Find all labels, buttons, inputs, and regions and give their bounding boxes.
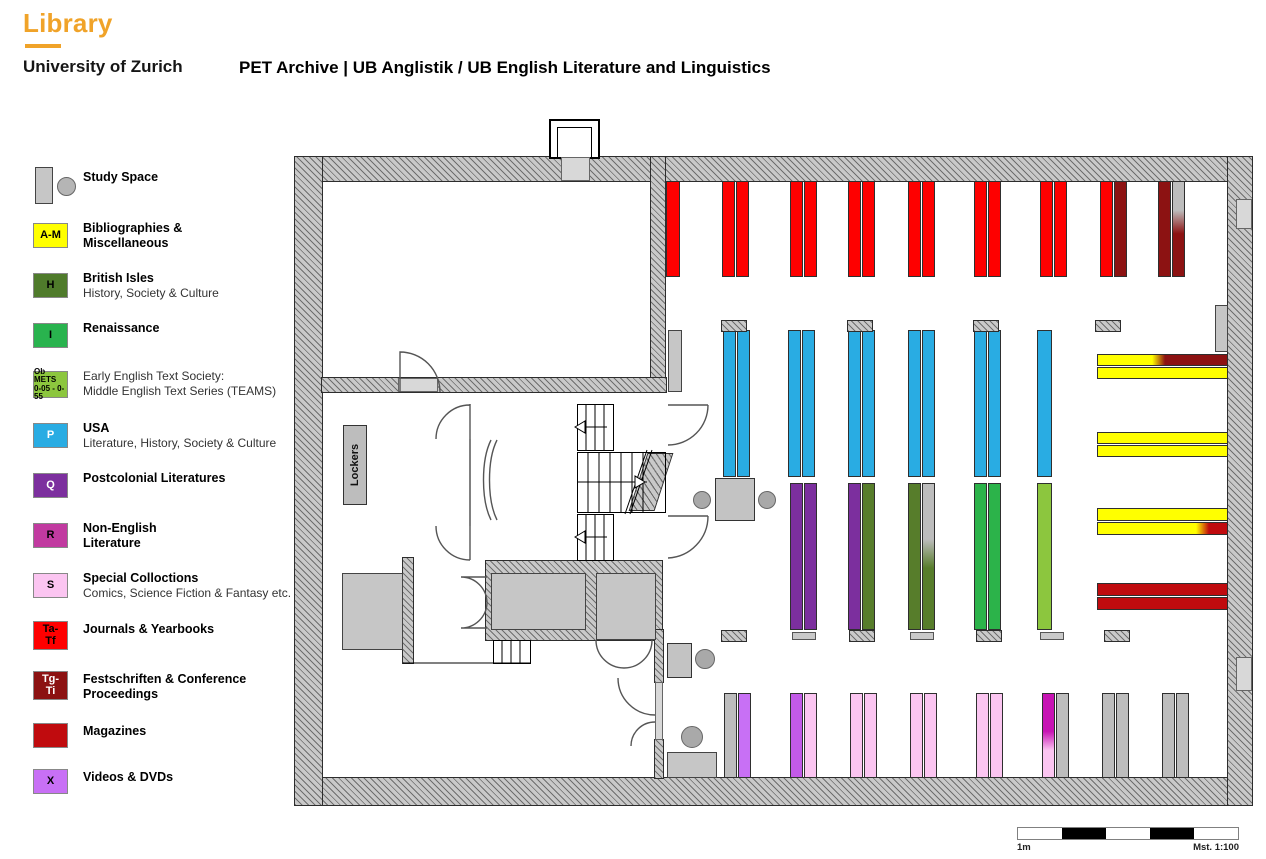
legend-text: Study Space — [83, 170, 303, 185]
shelf-bar — [1162, 693, 1175, 778]
shelf-bar — [974, 330, 987, 477]
door-threshold-room — [398, 378, 438, 392]
legend-swatch: Ta-Tf — [33, 621, 68, 650]
shelf-bar — [724, 693, 737, 778]
scale-bar — [1017, 827, 1239, 840]
legend-item: Tg-TiFestschriften & ConferenceProceedin… — [33, 671, 303, 711]
scale-bar-segment — [1106, 828, 1150, 839]
study-space-rect — [35, 167, 53, 204]
legend-item: QPostcolonial Literatures — [33, 473, 303, 513]
shelf-bar — [1056, 693, 1069, 778]
shelf-bar — [1158, 181, 1171, 277]
fixture-block — [667, 752, 717, 778]
scale-bar-segment — [1150, 828, 1194, 839]
logo-title: Library — [23, 8, 113, 39]
shelf-bar — [922, 483, 935, 630]
logo-subtitle: University of Zurich — [23, 57, 183, 77]
legend-subtitle-line: History, Society & Culture — [83, 286, 303, 301]
shelf-bar-horizontal — [1097, 597, 1228, 610]
legend-swatch: Ob METS0-05 - 0-55 — [33, 371, 68, 398]
fixture-block — [342, 573, 403, 650]
shelf-bar — [1037, 483, 1052, 630]
shelf-bar — [1042, 693, 1055, 778]
legend-text: Non-EnglishLiterature — [83, 521, 303, 551]
legend-swatch-code: Q — [46, 480, 55, 492]
chair — [695, 649, 715, 669]
legend-swatch-code: P — [47, 430, 54, 442]
legend-item: Ob METS0-05 - 0-55Early English Text Soc… — [33, 371, 303, 411]
legend-swatch: H — [33, 273, 68, 298]
shelf-bar — [976, 693, 989, 778]
legend-item: Ta-TfJournals & Yearbooks — [33, 621, 303, 661]
legend-text: Journals & Yearbooks — [83, 622, 303, 637]
shelf-bar — [722, 181, 735, 277]
legend-text: Renaissance — [83, 321, 303, 336]
legend-item: Magazines — [33, 723, 303, 763]
fixture-block — [668, 330, 682, 392]
shelf-end-cap — [792, 632, 816, 640]
shelf-bar — [790, 693, 803, 778]
legend-title-line: Magazines — [83, 724, 303, 739]
logo-underline — [25, 44, 61, 48]
legend-title-line: Videos & DVDs — [83, 770, 303, 785]
fixture-block — [596, 573, 656, 640]
shelf-bar-horizontal — [1097, 367, 1228, 379]
scale-label-ratio: Mst. 1:100 — [1130, 842, 1239, 853]
legend-subtitle-line: Literature, History, Society & Culture — [83, 436, 303, 451]
door-threshold-partition — [655, 682, 663, 740]
legend-swatch: Tg-Ti — [33, 671, 68, 700]
shelf-bar — [862, 483, 875, 630]
shelf-bar — [723, 330, 736, 477]
wall-strip-lower-left — [403, 558, 413, 663]
shelf-bar-horizontal — [1097, 445, 1228, 457]
vestibule-outline-inner — [557, 127, 592, 158]
wall-left — [295, 157, 322, 805]
legend-text: Special ColloctionsComics, Science Ficti… — [83, 571, 303, 601]
scale-bar-segment — [1062, 828, 1106, 839]
shelf-bar — [1054, 181, 1067, 277]
shelf-bar — [848, 483, 861, 630]
legend-title-line: British Isles — [83, 271, 303, 286]
legend-swatch: I — [33, 323, 68, 348]
shelf-bar — [910, 693, 923, 778]
structural-column — [722, 631, 746, 641]
shelf-end-cap — [1040, 632, 1064, 640]
structural-column — [974, 321, 998, 331]
chair — [758, 491, 776, 509]
wall-niche — [1236, 199, 1252, 229]
shelf-bar-horizontal — [1097, 522, 1228, 535]
legend-text: Early English Text Society:Middle Englis… — [83, 369, 303, 399]
legend-title-line: Bibliographies & — [83, 221, 303, 236]
shelf-bar — [1037, 330, 1052, 477]
legend-swatch: Q — [33, 473, 68, 498]
wall-top — [295, 157, 1252, 181]
shelf-bar — [1040, 181, 1053, 277]
legend-title-line: Proceedings — [83, 687, 303, 702]
shelf-bar — [908, 483, 921, 630]
structural-column — [850, 631, 874, 641]
lockers-label: Lockers — [349, 444, 361, 486]
wall-partition-upper — [651, 157, 665, 392]
shelf-bar — [848, 181, 861, 277]
shelf-bar — [737, 330, 750, 477]
study-space-chair-icon — [57, 177, 76, 196]
chair — [693, 491, 711, 509]
wall-bottom — [295, 778, 1252, 805]
legend-text: USALiterature, History, Society & Cultur… — [83, 421, 303, 451]
legend-subtitle-line: Middle English Text Series (TEAMS) — [83, 384, 303, 399]
shelf-bar — [736, 181, 749, 277]
structural-column — [977, 631, 1001, 641]
shelf-bar — [790, 181, 803, 277]
legend-title-line: Miscellaneous — [83, 236, 303, 251]
shelf-bar — [974, 483, 987, 630]
shelf-bar — [974, 181, 987, 277]
shelf-bar-horizontal — [1097, 354, 1228, 366]
fixture-block — [491, 573, 586, 630]
legend-title-line: Non-English — [83, 521, 303, 536]
study-table — [667, 643, 692, 678]
shelf-bar — [788, 330, 801, 477]
legend-swatch-code: R — [47, 530, 55, 542]
wall-partition-lower-a — [655, 630, 663, 682]
shelf-bar — [738, 693, 751, 778]
shelf-bar — [988, 483, 1001, 630]
shelf-bar — [804, 693, 817, 778]
legend-item: HBritish IslesHistory, Society & Culture — [33, 273, 303, 313]
legend-item: IRenaissance — [33, 323, 303, 363]
shelf-bar — [1116, 693, 1129, 778]
shelf-bar — [804, 483, 817, 630]
legend-swatch-code: H — [47, 280, 55, 292]
legend-swatch: R — [33, 523, 68, 548]
legend-text: Magazines — [83, 724, 303, 739]
legend-title-line: Literature — [83, 536, 303, 551]
legend-text: Festschriften & ConferenceProceedings — [83, 672, 303, 702]
shelf-bar — [802, 330, 815, 477]
scale-bar-segment — [1194, 828, 1238, 839]
page-title: PET Archive | UB Anglistik / UB English … — [239, 58, 771, 78]
legend-item: PUSALiterature, History, Society & Cultu… — [33, 423, 303, 463]
legend-subtitle-line: Comics, Science Fiction & Fantasy etc. — [83, 586, 303, 601]
legend-swatch-code: A-M — [40, 230, 61, 242]
legend-swatch-code: X — [47, 776, 54, 788]
legend-swatch-code: Ob METS — [34, 368, 67, 385]
legend-swatch: P — [33, 423, 68, 448]
legend-item: A-MBibliographies &Miscellaneous — [33, 223, 303, 263]
legend-title-line: Special Colloctions — [83, 571, 303, 586]
legend-title-line: Festschriften & Conference — [83, 672, 303, 687]
shelf-bar — [862, 330, 875, 477]
legend-swatch-code: Tg- — [42, 674, 59, 686]
vestibule-outline — [549, 119, 600, 159]
wall-partition-lower-b — [655, 740, 663, 778]
legend-title-line: USA — [83, 421, 303, 436]
shelf-bar — [790, 483, 803, 630]
shelf-bar — [804, 181, 817, 277]
shelf-bar — [666, 181, 680, 277]
legend-swatch-code: Ti — [46, 686, 56, 698]
shelf-bar — [862, 181, 875, 277]
legend-swatch-code: I — [49, 330, 52, 342]
legend-swatch-code: S — [47, 580, 54, 592]
scale-label-1m: 1m — [1017, 842, 1031, 853]
legend-title-line: Renaissance — [83, 321, 303, 336]
shelf-bar — [924, 693, 937, 778]
legend-swatch — [33, 723, 68, 748]
wall-niche — [1236, 657, 1252, 691]
structural-column — [722, 321, 746, 331]
shelf-bar — [864, 693, 877, 778]
structural-column — [848, 321, 872, 331]
shelf-bar — [908, 181, 921, 277]
shelf-bar — [848, 330, 861, 477]
wall-right — [1228, 157, 1252, 805]
wall-room-bottom — [322, 378, 666, 392]
shelf-bar — [988, 181, 1001, 277]
legend-title-line: Study Space — [83, 170, 303, 185]
shelf-bar — [922, 181, 935, 277]
legend-text: Videos & DVDs — [83, 770, 303, 785]
shelf-bar-horizontal — [1097, 583, 1228, 596]
shelf-bar — [988, 330, 1001, 477]
legend-item: SSpecial ColloctionsComics, Science Fict… — [33, 573, 303, 613]
structural-column — [1096, 321, 1120, 331]
floor-plan: Lockers — [295, 157, 1252, 805]
legend-swatch: X — [33, 769, 68, 794]
legend-title-line: Postcolonial Literatures — [83, 471, 303, 486]
shelf-bar — [1114, 181, 1127, 277]
legend-item: XVideos & DVDs — [33, 769, 303, 809]
shelf-bar — [990, 693, 1003, 778]
legend-title-line: Journals & Yearbooks — [83, 622, 303, 637]
study-table — [715, 478, 755, 521]
structural-column — [1105, 631, 1129, 641]
legend-text: Bibliographies &Miscellaneous — [83, 221, 303, 251]
shelf-bar — [1100, 181, 1113, 277]
shelf-bar — [1176, 693, 1189, 778]
legend-swatch-code: Ta- — [43, 624, 59, 636]
legend-subtitle-line: Early English Text Society: — [83, 369, 303, 384]
door-threshold-top — [561, 157, 590, 181]
legend-text: British IslesHistory, Society & Culture — [83, 271, 303, 301]
legend-item: RNon-EnglishLiterature — [33, 523, 303, 563]
legend-swatch: A-M — [33, 223, 68, 248]
shelf-bar — [908, 330, 921, 477]
shelf-bar — [1172, 181, 1185, 277]
chair — [681, 726, 703, 748]
legend-swatch-code: Tf — [45, 636, 55, 648]
shelf-bar — [850, 693, 863, 778]
shelf-bar — [922, 330, 935, 477]
shelf-bar-horizontal — [1097, 508, 1228, 521]
stair-landing-hatch — [630, 454, 672, 510]
legend-swatch-code: 0-05 - 0-55 — [34, 385, 67, 402]
legend-item: Study Space — [33, 167, 303, 207]
fixture-block — [1215, 305, 1228, 352]
legend-swatch: S — [33, 573, 68, 598]
shelf-bar-horizontal — [1097, 432, 1228, 444]
legend-text: Postcolonial Literatures — [83, 471, 303, 486]
scale-bar-segment — [1018, 828, 1062, 839]
lockers: Lockers — [343, 425, 367, 505]
shelf-end-cap — [910, 632, 934, 640]
shelf-bar — [1102, 693, 1115, 778]
